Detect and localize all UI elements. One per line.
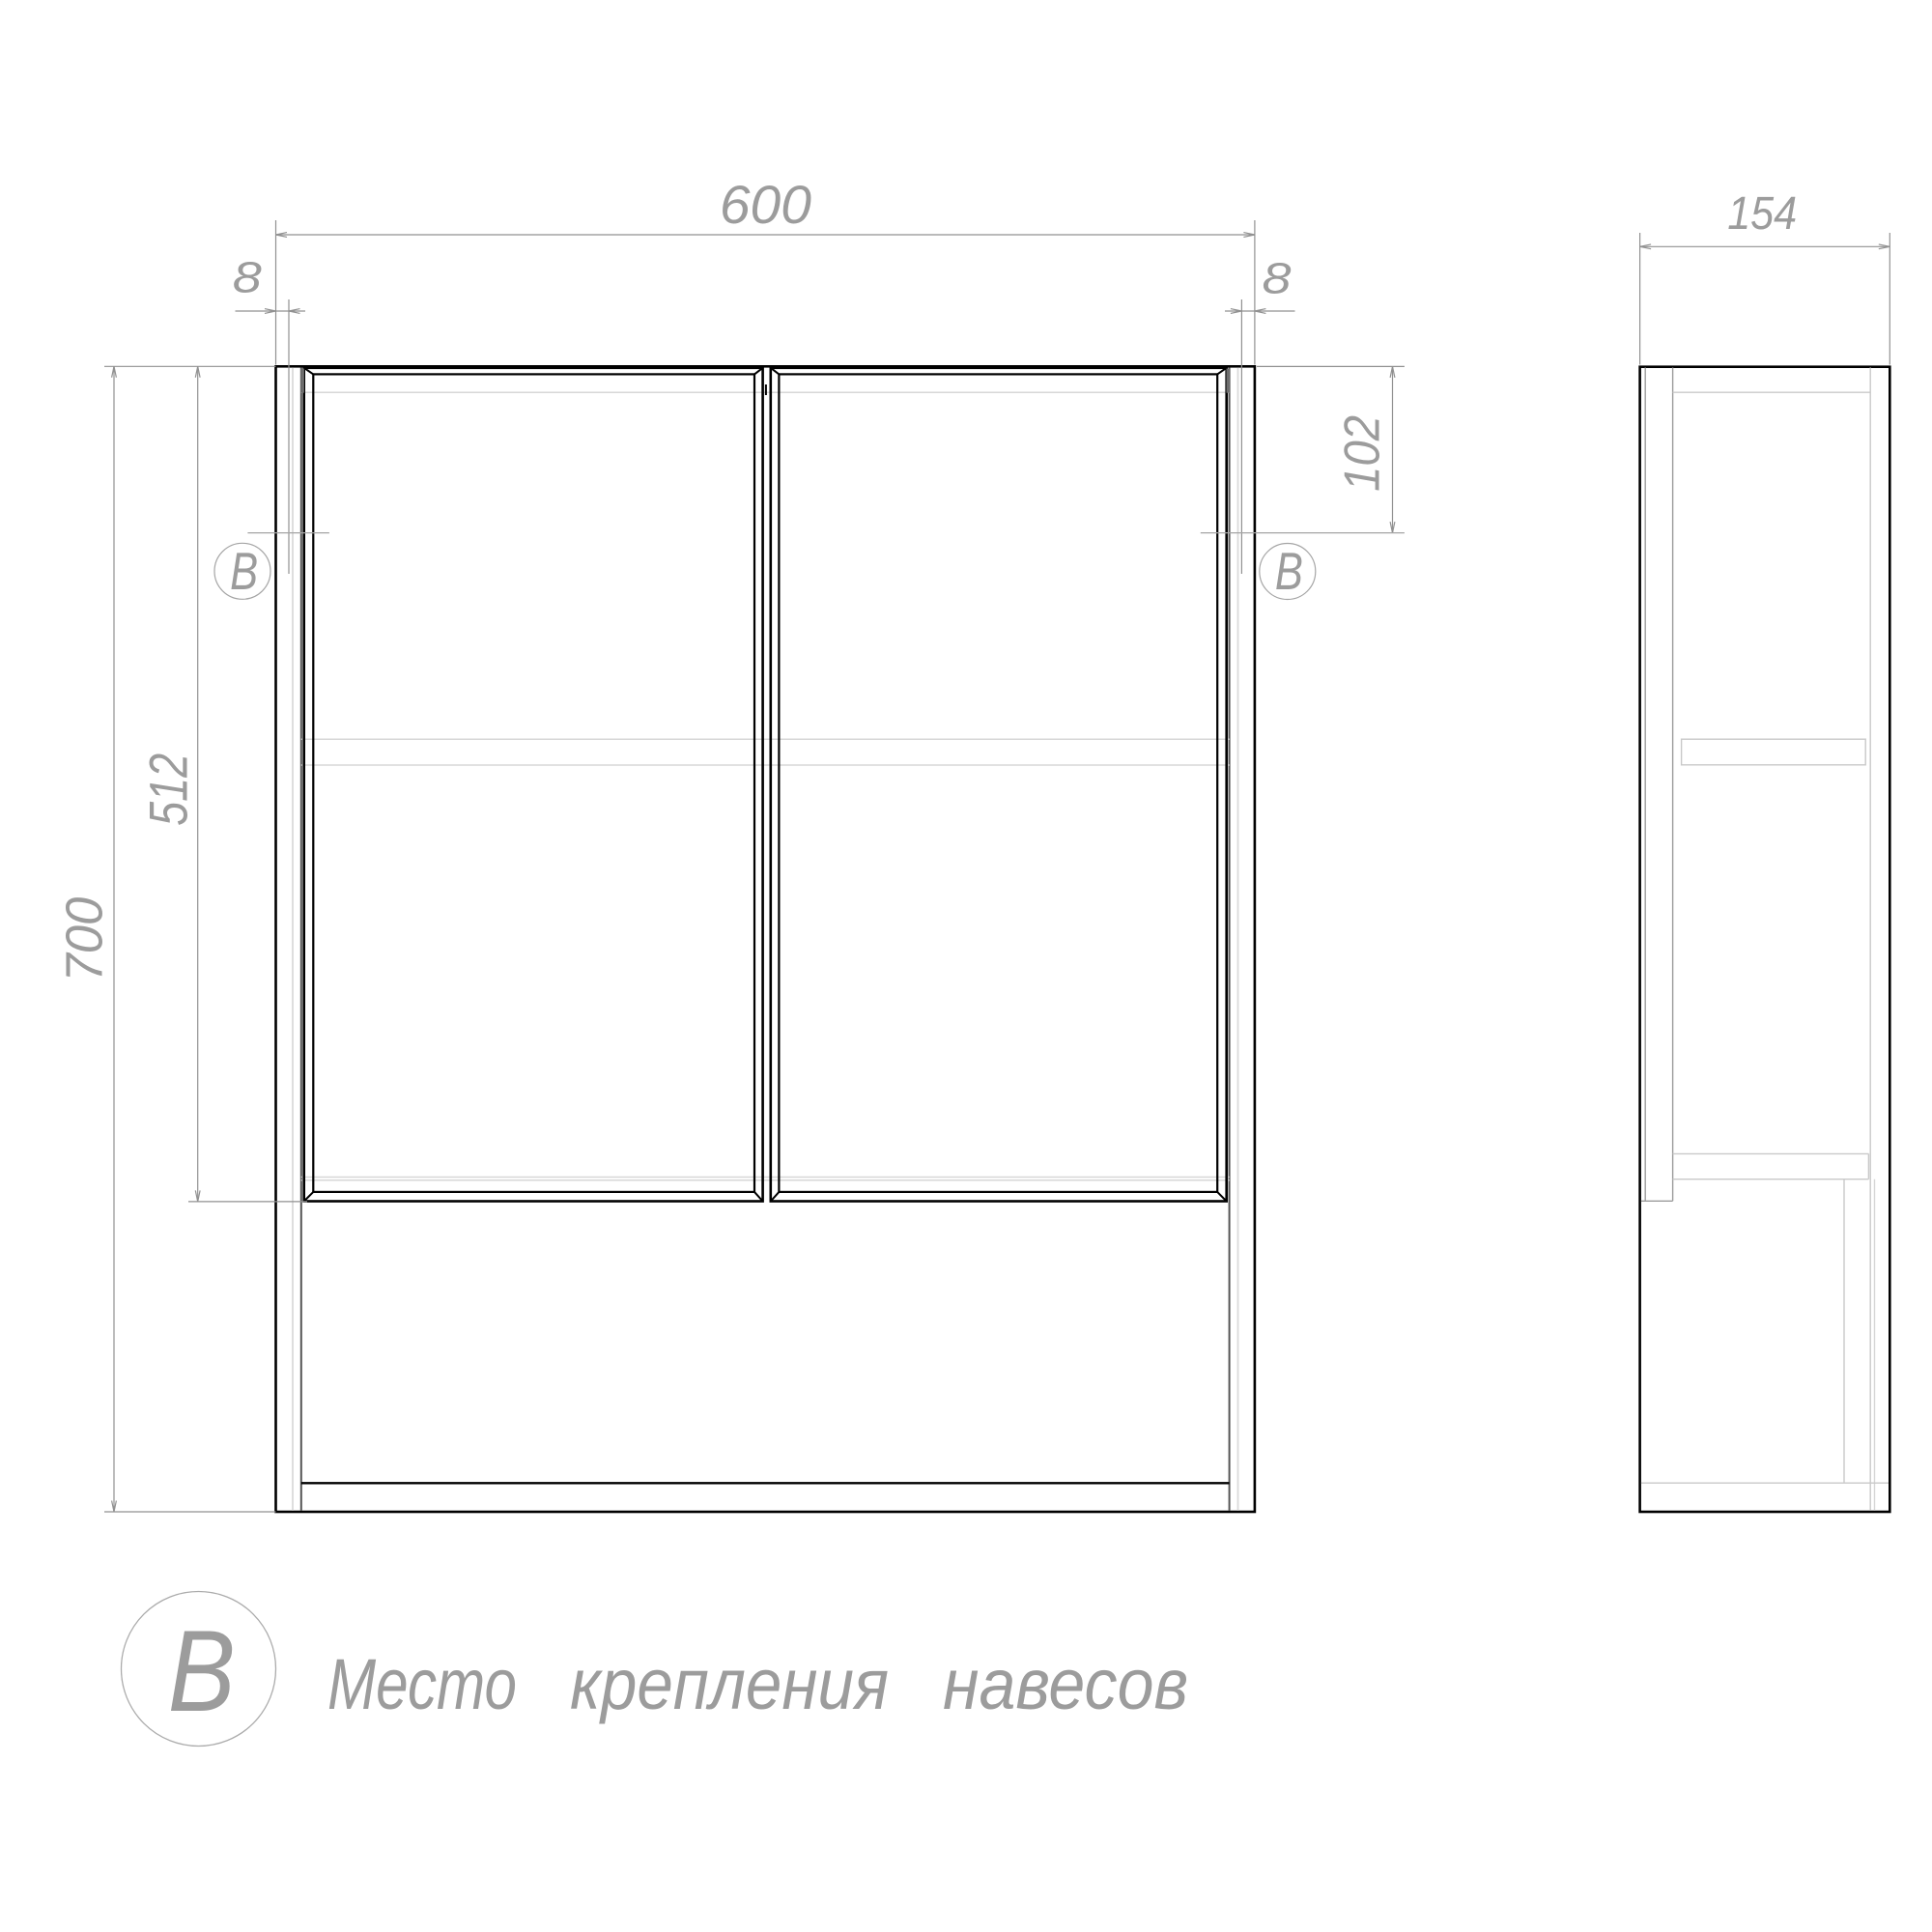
svg-text:102: 102 [1335,415,1391,492]
svg-text:Место: Место [327,1644,517,1724]
svg-text:8: 8 [1263,254,1292,303]
svg-text:600: 600 [720,174,811,235]
svg-text:навесов: навесов [943,1644,1188,1724]
svg-text:8: 8 [233,253,262,302]
svg-text:B: B [230,541,258,601]
svg-text:B: B [1275,541,1303,601]
svg-text:B: B [168,1606,236,1736]
svg-text:154: 154 [1727,188,1797,240]
svg-text:512: 512 [138,753,199,826]
svg-text:крепления: крепления [570,1644,889,1724]
svg-text:700: 700 [56,897,114,982]
